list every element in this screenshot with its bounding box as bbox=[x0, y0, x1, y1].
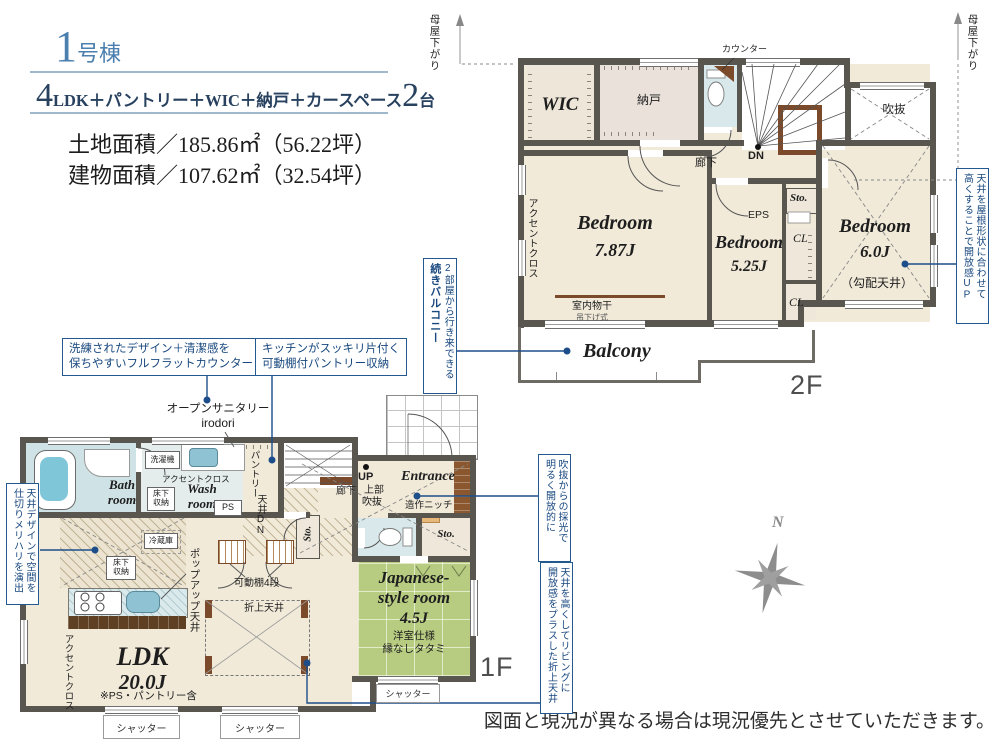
wall-segment bbox=[278, 443, 284, 518]
room-toilet-2f bbox=[703, 64, 737, 127]
floor-storage-kitchen-label: 床下 収納 bbox=[106, 556, 136, 580]
window bbox=[518, 240, 526, 276]
callout-sloped-col2: 高くすることで開放感UP bbox=[960, 173, 973, 319]
bath-name2: room bbox=[92, 493, 152, 508]
spec-rooms: LDK＋パントリー＋WIC＋納戸＋カースペース bbox=[53, 91, 402, 110]
entrance-label: Entrance bbox=[388, 469, 468, 485]
entrance-porch bbox=[386, 395, 478, 460]
spec-line: 4LDK＋パントリー＋WIC＋納戸＋カースペース2台 bbox=[36, 76, 435, 115]
wall-segment bbox=[352, 455, 476, 461]
callout-void-col1: 吹抜からの採光で bbox=[555, 459, 568, 557]
spec-car-unit: 台 bbox=[419, 93, 435, 110]
open-sanitary-brand: irodori bbox=[158, 417, 278, 431]
callout-balcony-col1: 2部屋から行き来できる bbox=[441, 263, 454, 389]
void-1f-label: 吹抜 bbox=[362, 497, 382, 509]
bedroom2-name: Bedroom bbox=[709, 232, 789, 253]
bath-label: Bath room bbox=[92, 478, 152, 508]
window bbox=[714, 320, 778, 329]
ldk-note: ※PS・パントリー含 bbox=[100, 690, 197, 702]
window bbox=[378, 676, 438, 684]
shutter-box-2: シャッター bbox=[220, 715, 300, 739]
popup-ceiling-label: ポップアップ天井 bbox=[188, 548, 200, 640]
floor2-label: 2F bbox=[790, 370, 824, 401]
floor-storage-wash-label: 床下 収納 bbox=[147, 487, 175, 511]
bedroom2-size: 5.25J bbox=[714, 258, 784, 276]
fridge-label: 冷蔵庫 bbox=[144, 533, 178, 549]
kitchen-sink bbox=[126, 591, 160, 613]
building-title: 1号棟 bbox=[55, 22, 121, 73]
callout-oriage-col2: 開放感をプラスした折上天井 bbox=[544, 567, 557, 709]
dn-label: DN bbox=[748, 150, 764, 163]
window bbox=[640, 58, 698, 67]
ceiling-post bbox=[301, 656, 308, 674]
callout-left-col1: 天井デザインで空間を bbox=[23, 488, 36, 600]
moyasagari-label-right: 母屋下がり bbox=[966, 14, 978, 72]
window bbox=[222, 706, 298, 714]
movable-shelf-closet bbox=[218, 540, 246, 564]
wall-segment bbox=[352, 443, 358, 562]
hallway-2f-label: 廊下 bbox=[695, 157, 717, 170]
bedroom1-size: 7.87J bbox=[560, 240, 670, 261]
accent-ldk-label: アクセントクロス bbox=[62, 634, 72, 710]
balcony-post bbox=[656, 372, 657, 380]
window bbox=[845, 300, 923, 309]
ldk-name: LDK bbox=[90, 642, 195, 672]
closet-ticks bbox=[808, 230, 812, 278]
wall-segment bbox=[524, 150, 712, 156]
spec-car-count: 2 bbox=[402, 77, 419, 114]
wall-segment bbox=[352, 556, 476, 562]
wic-label: WIC bbox=[530, 94, 590, 116]
window bbox=[152, 437, 224, 445]
counter-label: カウンター bbox=[722, 44, 767, 54]
callout-pantry: キッチンがスッキリ片付く 可動棚付パントリー収納 bbox=[255, 338, 407, 376]
coffered-ceiling-label: 折上天井 bbox=[242, 603, 286, 615]
accent-cloth-2f-label: アクセントクロス bbox=[526, 198, 537, 278]
cl-lower-label: CL bbox=[789, 296, 804, 310]
disclaimer-text: 図面と現況が異なる場合は現況優先とさせていただきます。 bbox=[440, 711, 995, 733]
sto-right-label: Sto. bbox=[426, 528, 466, 541]
movable-shelf-label: 可動棚4段 bbox=[234, 578, 280, 590]
callout-pantry-line2: 可動棚付パントリー収納 bbox=[262, 357, 400, 372]
window bbox=[860, 82, 924, 90]
wall-segment bbox=[594, 64, 600, 146]
japanese-room-label: Japanese- style room 4.5J 洋室仕様 縁なしタタミ bbox=[358, 568, 470, 655]
callout-ceiling-design: 天井デザインで空間を 仕切りメリハリを演出 bbox=[6, 483, 39, 605]
balcony-rail bbox=[698, 360, 701, 383]
fsw2: 収納 bbox=[148, 499, 174, 508]
balcony-rail bbox=[698, 360, 815, 363]
shutter-box-1: シャッター bbox=[103, 715, 180, 739]
wall-segment bbox=[470, 455, 476, 682]
moyasagari-label-left: 母屋下がり bbox=[428, 14, 440, 72]
indoor-drying-bar bbox=[555, 295, 665, 298]
void-2f-label: 吹抜 bbox=[872, 104, 916, 117]
movable-shelf-closet bbox=[266, 540, 294, 564]
kitchen-front-floor bbox=[68, 616, 186, 629]
window bbox=[518, 165, 526, 195]
accent-wash-label: アクセントクロス bbox=[162, 475, 230, 485]
up-label: UP bbox=[358, 471, 373, 484]
callout-void-light: 吹抜からの採光で 明るく開放的に bbox=[538, 454, 571, 562]
callout-pantry-line1: キッチンがスッキリ片付く bbox=[262, 342, 400, 357]
window bbox=[930, 245, 938, 287]
ceiling-post bbox=[205, 656, 212, 674]
callout-coffered: 天井を高くしてリビングに 開放感をプラスした折上天井 bbox=[540, 562, 573, 714]
bath-counter bbox=[84, 449, 130, 477]
bathtub-water bbox=[40, 457, 68, 501]
callout-sloped-ceiling: 天井を屋根形状に合わせて 高くすることで開放感UP bbox=[956, 168, 989, 324]
callout-counter: 洗練されたデザイン＋清潔感を 保ちやすいフルフラットカウンター bbox=[62, 338, 260, 376]
closet-ticks bbox=[604, 132, 656, 136]
balcony-post bbox=[556, 372, 557, 380]
balcony-rail bbox=[518, 380, 701, 383]
wall-segment bbox=[698, 64, 704, 146]
room-toilet-1f bbox=[358, 518, 416, 556]
callout-counter-line1: 洗練されたデザイン＋清潔感を bbox=[69, 342, 253, 357]
wall-segment bbox=[712, 178, 816, 184]
ceiling-post bbox=[205, 600, 212, 618]
indoor-drying-label: 室内物干 bbox=[557, 301, 627, 313]
jroom-note2: 縁なしタタミ bbox=[358, 643, 470, 656]
jroom-size: 4.5J bbox=[358, 609, 470, 628]
callout-void-col2: 明るく開放的に bbox=[542, 459, 555, 557]
ps-label: PS bbox=[214, 500, 242, 516]
window bbox=[20, 620, 28, 664]
bath-name1: Bath bbox=[92, 478, 152, 493]
callout-balcony: 2部屋から行き来できる 続きバルコニー bbox=[423, 258, 457, 394]
compass-rose bbox=[727, 535, 812, 620]
compass-north-label: N bbox=[772, 514, 784, 532]
jroom-name2: style room bbox=[358, 588, 470, 608]
callout-oriage-col1: 天井を高くしてリビングに bbox=[557, 567, 570, 709]
floor1-label: 1F bbox=[480, 652, 514, 683]
pantry-label: パントリー bbox=[248, 450, 258, 486]
stove bbox=[74, 591, 122, 615]
balcony-label: Balcony bbox=[583, 340, 651, 363]
fsk2: 収納 bbox=[107, 568, 135, 577]
stair-rail-1f bbox=[320, 477, 352, 485]
building-number: 1 bbox=[55, 22, 77, 71]
building-area: 建物面積／107.62㎡（32.54坪） bbox=[68, 163, 376, 188]
callout-sloped-col1: 天井を屋根形状に合わせて bbox=[973, 173, 986, 319]
window bbox=[105, 706, 178, 714]
wall-segment bbox=[388, 513, 476, 518]
wall-segment bbox=[518, 140, 744, 146]
callout-balcony-col2: 続きバルコニー bbox=[427, 263, 441, 389]
wall-segment bbox=[786, 280, 816, 284]
window bbox=[470, 580, 478, 636]
wall-segment bbox=[20, 512, 310, 518]
callout-left-col2: 仕切りメリハリを演出 bbox=[10, 488, 23, 600]
ceiling-post bbox=[301, 600, 308, 618]
window bbox=[48, 437, 110, 445]
wall-segment bbox=[737, 64, 742, 132]
floorplan-sheet: 1号棟 4LDK＋パントリー＋WIC＋納戸＋カースペース2台 土地面積／185.… bbox=[0, 0, 1000, 750]
callout-counter-line2: 保ちやすいフルフラットカウンター bbox=[69, 357, 253, 372]
wall-segment bbox=[20, 706, 376, 712]
open-sanitary-label: オープンサニタリー bbox=[158, 403, 278, 416]
washer-label: 洗濯機 bbox=[145, 451, 180, 469]
land-area: 土地面積／185.86㎡（56.22坪） bbox=[68, 132, 376, 157]
eps-label: EPS bbox=[748, 209, 769, 221]
window bbox=[746, 58, 800, 67]
bedroom1-name: Bedroom bbox=[545, 212, 685, 235]
closet-ticks bbox=[246, 445, 274, 449]
bedroom3-name: Bedroom bbox=[816, 216, 934, 238]
upper-label: 上部 bbox=[364, 485, 384, 497]
balcony-rail bbox=[518, 327, 521, 383]
balcony-rail bbox=[812, 330, 815, 363]
ceiling-dn-label: 天井DN bbox=[255, 494, 266, 536]
hallway-1f-label: 廊下 bbox=[336, 486, 356, 498]
wall-segment bbox=[416, 518, 422, 556]
wall-segment bbox=[845, 88, 851, 146]
jroom-note1: 洋室仕様 bbox=[358, 630, 470, 643]
indoor-drying-sub: 吊下げ式 bbox=[564, 313, 620, 322]
jroom-name1: Japanese- bbox=[358, 568, 470, 588]
bedroom3-size: 6.0J bbox=[826, 242, 924, 262]
sto-2f-label: Sto. bbox=[790, 192, 807, 205]
sto-left-label: Sto. bbox=[302, 519, 314, 549]
cl-upper-label: CL bbox=[793, 232, 808, 246]
wash-basin bbox=[189, 448, 218, 467]
shutter-box-3: シャッター bbox=[376, 684, 440, 703]
spec-room-count: 4 bbox=[36, 77, 53, 114]
sloped-ceiling-note: （勾配天井） bbox=[838, 277, 916, 291]
niche-label: 造作ニッチ bbox=[404, 501, 454, 512]
wall-segment bbox=[816, 140, 936, 146]
building-unit: 号棟 bbox=[77, 41, 121, 66]
nando-label: 納戸 bbox=[604, 94, 694, 108]
